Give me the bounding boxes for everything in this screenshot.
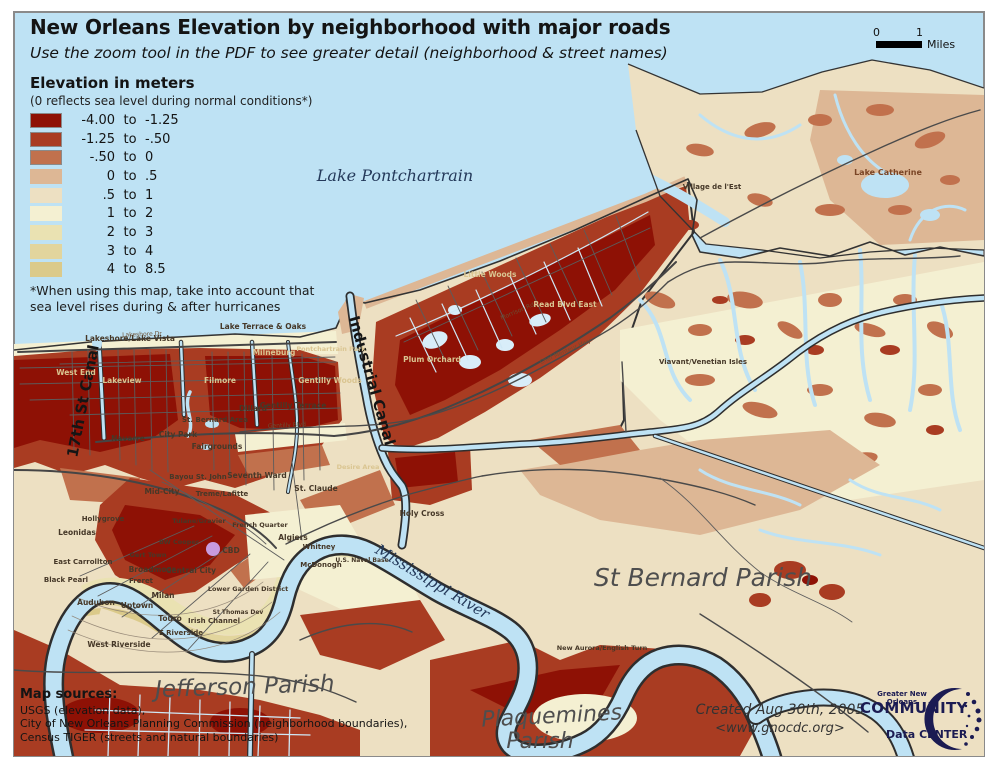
legend-range-word: to <box>115 169 145 184</box>
legend-footnote-line1: *When using this map, take into account … <box>30 283 314 299</box>
scale-bar-rule <box>876 41 922 48</box>
ndark-label: St Thomas Dev <box>213 609 264 616</box>
nlight-label: Plum Orchard <box>403 355 461 364</box>
credits-url: <www.gnocdc.org> <box>690 721 870 736</box>
legend-range-to: 0 <box>145 150 153 165</box>
superdome-marker <box>206 542 220 556</box>
ndark-label: West Riverside <box>87 640 150 649</box>
map-sources-line: USGS (elevation data), <box>20 704 407 717</box>
nlight-label: Milneburg <box>253 348 296 357</box>
parish-label: St Bernard Parish <box>594 563 812 592</box>
ndark-label: Leonidas <box>58 528 96 537</box>
legend-range-word: to <box>115 188 145 203</box>
legend: -4.00to-1.25-1.25to-.50-.50to00to.5.5to1… <box>30 111 179 279</box>
ndark-label: Navarre <box>111 434 145 443</box>
scale-tick-1: 1 <box>916 26 923 39</box>
ndark-label: Gert Town <box>130 551 167 559</box>
scale-bar: 0 1 Miles <box>876 26 986 56</box>
legend-swatch <box>30 169 62 184</box>
ndark-label: Algiers <box>278 533 308 542</box>
map-page: Lake PontchartrainMississippi River17th … <box>0 0 1000 773</box>
legend-swatch <box>30 262 62 277</box>
legend-range-to: 3 <box>145 225 153 240</box>
legend-footnote-line2: sea level rises during & after hurricane… <box>30 299 314 315</box>
legend-range-from: 1 <box>71 206 115 221</box>
parish-label: Parish <box>506 729 573 754</box>
legend-range-word: to <box>115 244 145 259</box>
legend-swatch <box>30 113 62 128</box>
legend-title: Elevation in meters <box>30 74 195 92</box>
legend-range-from: 2 <box>71 225 115 240</box>
credits-date: Created Aug 30th, 2005 <box>690 702 870 718</box>
ndark-label: Irish Channel <box>188 617 240 625</box>
legend-swatch <box>30 188 62 203</box>
ndark-label: Milan <box>151 591 174 600</box>
legend-row: 4to8.5 <box>30 261 179 280</box>
legend-row: 1to2 <box>30 204 179 223</box>
ndark-label: Village de l'Est <box>683 183 742 191</box>
map-sources-line: Census TIGER (streets and natural bounda… <box>20 731 407 744</box>
legend-range-to: 4 <box>145 244 153 259</box>
legend-range-from: .5 <box>71 188 115 203</box>
legend-swatch <box>30 132 62 147</box>
legend-swatch <box>30 225 62 240</box>
legend-subtitle: (0 reflects sea level during normal cond… <box>30 94 312 108</box>
ndark-label: Bayou St. John <box>169 473 227 481</box>
map-sources-lines: USGS (elevation data),City of New Orlean… <box>20 704 407 744</box>
ndark-label: Whitney <box>303 543 336 551</box>
ndark-label: Viavant/Venetian Isles <box>659 358 747 366</box>
ndark-label: Tulane/Gravier <box>172 517 226 525</box>
map-sources: Map sources: USGS (elevation data),City … <box>20 687 407 744</box>
gnocdc-logo: Greater New Orleans COMMUNITY Data CENTE… <box>860 684 986 754</box>
nbrown-label: Lake Catherine <box>854 168 922 177</box>
ndark-label: CBD <box>222 546 239 555</box>
page-subtitle: Use the zoom tool in the PDF to see grea… <box>30 44 668 62</box>
legend-row: -4.00to-1.25 <box>30 111 179 130</box>
legend-swatch <box>30 150 62 165</box>
ndark-label: Fairgrounds <box>192 442 243 451</box>
legend-range-from: 0 <box>71 169 115 184</box>
ndark-label: St. Bernard Area <box>182 416 248 424</box>
ndark-label: E Riverside <box>159 629 203 637</box>
ndark-label: Black Pearl <box>44 576 88 584</box>
ndark-label: Lake Terrace & Oaks <box>220 322 307 331</box>
legend-row: 2to3 <box>30 223 179 242</box>
scale-unit: Miles <box>927 38 955 51</box>
ndark-label: U.S. Naval Base <box>335 557 388 564</box>
ndark-label: Lower Garden District <box>208 585 288 593</box>
legend-range-from: -1.25 <box>71 132 115 147</box>
ndark-label: East Carrollton <box>54 558 113 566</box>
legend-row: -.50to0 <box>30 148 179 167</box>
legend-range-to: -1.25 <box>145 113 179 128</box>
legend-range-to: 1 <box>145 188 153 203</box>
nlight-label: Read Blvd East <box>533 300 597 309</box>
legend-swatch <box>30 244 62 259</box>
ndark-label: French Quarter <box>232 521 288 529</box>
legend-range-word: to <box>115 113 145 128</box>
legend-row: -1.25to-.50 <box>30 130 179 149</box>
legend-range-to: 2 <box>145 206 153 221</box>
nlight-label: Little Woods <box>464 270 517 279</box>
legend-row: .5to1 <box>30 186 179 205</box>
map-sources-line: City of New Orleans Planning Commission … <box>20 717 407 730</box>
ndark-label: Uptown <box>121 601 153 610</box>
ndark-label: Holy Cross <box>400 509 445 518</box>
ndark-label: Gentilly Terrace <box>260 401 327 410</box>
page-title: New Orleans Elevation by neighborhood wi… <box>30 15 670 39</box>
legend-range-word: to <box>115 132 145 147</box>
ndark-label: City Park <box>159 430 198 439</box>
ndark-label: Audubon <box>77 598 115 607</box>
ndark-label: Dillard <box>239 404 267 413</box>
street-label: Lakeshore Dr <box>122 330 162 338</box>
legend-range-word: to <box>115 206 145 221</box>
nlight-label: Gentilly Woods <box>298 376 362 385</box>
legend-row: 3to4 <box>30 242 179 261</box>
legend-range-word: to <box>115 262 145 277</box>
legend-row: 0to.5 <box>30 167 179 186</box>
legend-range-to: .5 <box>145 169 157 184</box>
ndark-label: McDonogh <box>300 561 342 569</box>
ndark-label: New Aurora/English Turn <box>557 644 648 652</box>
legend-range-from: -4.00 <box>71 113 115 128</box>
scale-tick-0: 0 <box>873 26 880 39</box>
legend-range-to: -.50 <box>145 132 170 147</box>
ndark-label: Seventh Ward <box>227 471 286 480</box>
ndark-label: Central City <box>166 566 216 575</box>
legend-range-from: 4 <box>71 262 115 277</box>
ndark-label: Mid-City <box>144 487 179 496</box>
ndark-label: BW Cooper <box>159 538 200 546</box>
nlight-label: Lakeview <box>102 376 141 385</box>
nlight-label: Filmore <box>204 376 236 385</box>
legend-range-word: to <box>115 150 145 165</box>
legend-range-to: 8.5 <box>145 262 166 277</box>
ndark-label: St. Claude <box>294 484 337 493</box>
logo-line2: COMMUNITY <box>860 699 968 717</box>
ndark-label: Hollygrove <box>82 515 125 523</box>
nlight-label: Pontchartrain Park <box>296 345 366 353</box>
legend-swatch <box>30 206 62 221</box>
legend-footnote: *When using this map, take into account … <box>30 283 314 316</box>
logo-line3: Data CENTER <box>886 728 967 741</box>
map-sources-heading: Map sources: <box>20 687 407 702</box>
legend-range-word: to <box>115 225 145 240</box>
nlight-label: Desire Area <box>337 463 380 471</box>
legend-range-from: -.50 <box>71 150 115 165</box>
nlight-label: West End <box>56 368 96 377</box>
ndark-label: Treme/Lafitte <box>196 490 249 498</box>
water-label: Lake Pontchartrain <box>316 166 473 185</box>
legend-range-from: 3 <box>71 244 115 259</box>
credits: Created Aug 30th, 2005 <www.gnocdc.org> <box>690 702 870 736</box>
ndark-label: Touro <box>158 614 181 623</box>
ndark-label: Freret <box>129 577 154 585</box>
